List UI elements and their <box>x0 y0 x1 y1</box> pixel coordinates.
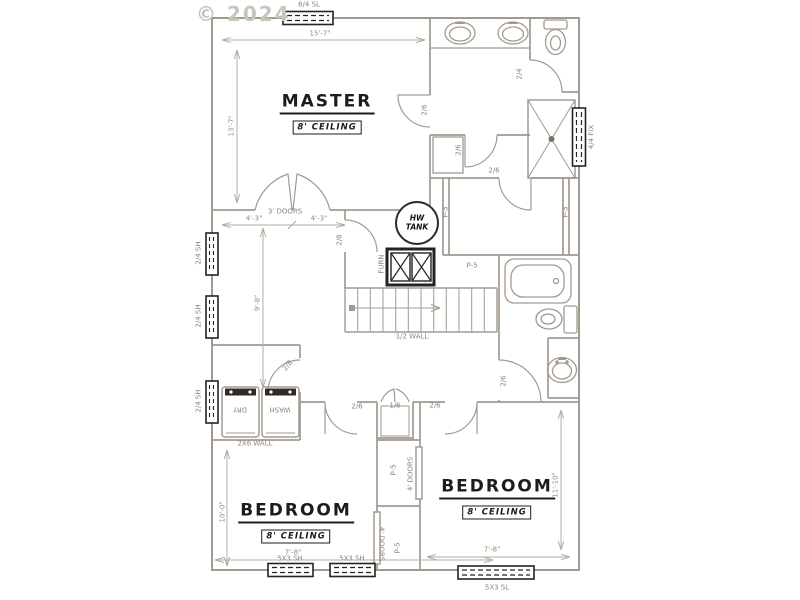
dim-bed-right-width <box>427 554 570 559</box>
door-label-master-closet: 3' DOORS <box>268 209 302 216</box>
room-label-master: MASTER 8' CEILING <box>280 92 375 135</box>
dim-label-bed-right-depth: 11'-10" <box>553 472 560 497</box>
wall-2x6-label: 2X6 WALL <box>237 441 272 448</box>
bathtub <box>505 259 571 303</box>
window-label-left-1: 2/4 SH <box>196 241 203 264</box>
window-label-top: 6/4 SL <box>298 2 320 9</box>
bedroom-right-door-arc <box>445 402 477 434</box>
wc-door-arc <box>530 60 562 92</box>
dim-label-closet-a: 4'-3" <box>246 216 263 223</box>
sink-hall-bath <box>548 358 577 383</box>
half-wall-label: 1/2 WALL <box>396 334 429 341</box>
window-left-sh-1 <box>206 233 218 275</box>
window-label-left-3: 2/4 SH <box>196 389 203 412</box>
window-bottom-sl <box>458 566 534 579</box>
room-label-bedroom-left: BEDROOM 8' CEILING <box>238 501 354 544</box>
door-label-linen: 1/6 <box>389 403 400 410</box>
floor-plan-page: © 2024 MASTER 8' CEILING BEDROOM 8' CEIL… <box>0 0 800 600</box>
floor-plan-drawing <box>0 0 800 600</box>
door-label-bedroom-left: 2/6 <box>351 404 362 411</box>
room-name: BEDROOM <box>439 477 555 500</box>
door-label-master-bath: 2/6 <box>422 104 429 115</box>
door-label-wc: 2/4 <box>517 68 524 79</box>
plumbing-label-4: P-5 <box>391 464 398 475</box>
furnace-label: FURN <box>379 254 386 273</box>
plumbing-label-1: P-5 <box>443 206 450 217</box>
dim-label-master-depth: 13'-7" <box>229 115 236 136</box>
plumbing-label-3: P-5 <box>466 263 477 270</box>
dim-label-bed-left-depth: 10'-0" <box>220 501 227 522</box>
door-label-hall-room: 2/6 <box>488 168 499 175</box>
dim-label-bed-left-width: 7'-8" <box>285 550 302 557</box>
window-label-right-fix: 4/4 FIX <box>589 125 596 149</box>
window-label-bottom-2: 5X3 SH <box>339 556 365 563</box>
window-left-sh-2 <box>206 296 218 338</box>
staircase <box>345 288 497 332</box>
dim-label-bed-right-width: 7'-8" <box>484 547 501 554</box>
window-label-bottom-1: 5X3 SH <box>277 556 303 563</box>
dim-label-closet-b: 4'-3" <box>311 216 328 223</box>
door-label-closet-right: 4' DOORS <box>408 457 415 491</box>
room-name: MASTER <box>280 92 375 115</box>
hall-room-door-arc <box>499 178 531 210</box>
window-left-sh-3 <box>206 381 218 423</box>
toilet-hall-bath <box>536 306 577 333</box>
shower <box>528 100 575 178</box>
ceiling-tag: 8' CEILING <box>462 506 531 520</box>
closet-right-door-slab <box>416 447 422 499</box>
sink-left <box>445 22 475 44</box>
ceiling-tag: 8' CEILING <box>261 530 330 544</box>
window-right-fix <box>573 108 586 166</box>
window-bottom-sh-2 <box>330 564 375 577</box>
door-label-bath-cabinet: 2/6 <box>456 144 463 155</box>
linen-doors-arc <box>381 389 409 402</box>
master-closet-doors-arc <box>255 174 292 210</box>
hw-tank-label: HW TANK <box>406 214 428 231</box>
ceiling-tag: 8' CEILING <box>292 121 361 135</box>
mech-door-arc <box>345 220 377 252</box>
room-label-bedroom-right: BEDROOM 8' CEILING <box>439 477 555 520</box>
furnace-closet <box>387 249 434 285</box>
window-bottom-sh-1 <box>268 564 313 577</box>
copyright-watermark: © 2024 <box>196 2 291 26</box>
door-label-bedroom-right: 2/6 <box>429 403 440 410</box>
door-label-hall-bath: 2/6 <box>501 375 508 386</box>
plumbing-label-2: P-5 <box>563 206 570 217</box>
plumbing-label-5: P-5 <box>395 542 402 553</box>
bath-cabinet-door-arc <box>465 135 497 167</box>
washer-label: WASH <box>269 406 290 413</box>
toilet-wc <box>544 20 567 55</box>
dim-label-master-width: 15'-7" <box>309 31 330 38</box>
window-label-left-2: 2/4 SH <box>196 304 203 327</box>
door-label-mech: 2/8 <box>337 234 344 245</box>
sink-right <box>498 22 528 44</box>
door-label-closet-left: 4' DOORS <box>378 527 385 561</box>
dim-label-hall-depth: 9'-8" <box>255 295 262 312</box>
window-label-bottom-sl: 5X3 SL <box>485 585 509 592</box>
dim-master-width <box>222 37 425 42</box>
room-name: BEDROOM <box>238 501 354 524</box>
dryer-label: DRY <box>233 406 247 413</box>
